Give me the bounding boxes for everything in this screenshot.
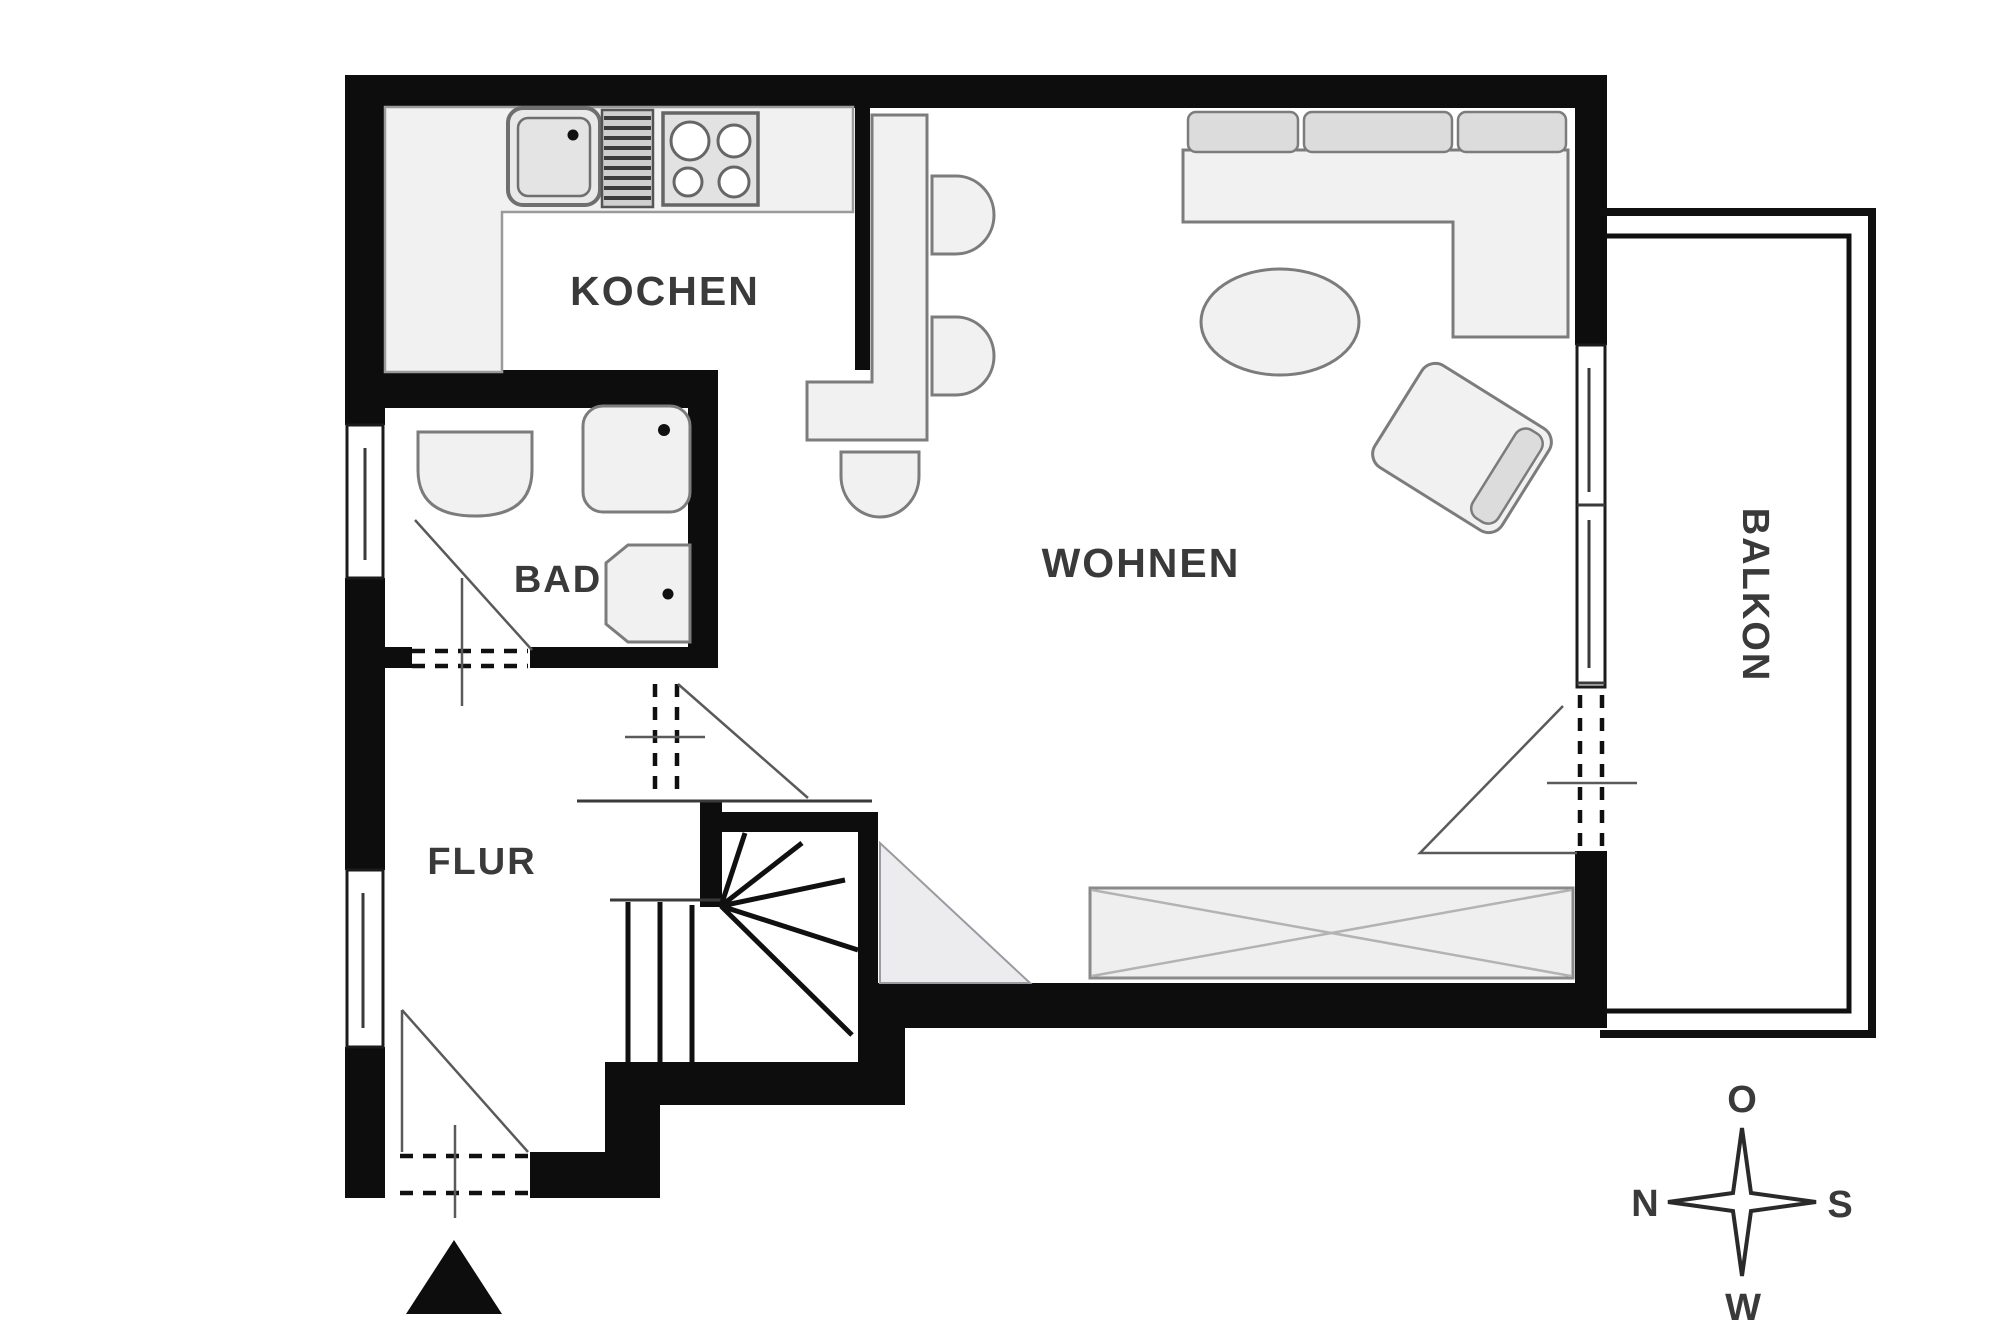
room-label-balcony: BALKON bbox=[1734, 508, 1776, 683]
floor-plan-page: O N S W KOCHEN BAD FLUR WOHNEN BALKON bbox=[0, 0, 2000, 1341]
toilet-icon bbox=[418, 432, 532, 516]
compass-north-label: N bbox=[1631, 1183, 1658, 1225]
wall-left-upper bbox=[345, 75, 385, 425]
wall-hall-right-lower bbox=[605, 1062, 660, 1198]
wall-bath-right bbox=[688, 370, 718, 668]
doors bbox=[400, 520, 1637, 1218]
coffee-table-icon bbox=[1201, 269, 1359, 375]
wall-left-lower bbox=[345, 1047, 385, 1198]
floor-plan-drawing: O N S W KOCHEN BAD FLUR WOHNEN BALKON bbox=[0, 0, 2000, 1341]
wall-bath-bottom-stub bbox=[385, 647, 412, 668]
kitchen-fixtures bbox=[385, 107, 853, 372]
wall-left-middle bbox=[345, 578, 385, 870]
wall-stair-top bbox=[703, 812, 878, 832]
drainboard-icon bbox=[602, 110, 653, 207]
hall-living-opening bbox=[625, 684, 808, 798]
room-label-hall: FLUR bbox=[427, 841, 536, 883]
room-label-bath: BAD bbox=[514, 559, 602, 601]
window-left-hall bbox=[347, 870, 383, 1047]
stairs-icon bbox=[577, 801, 872, 1062]
room-label-living: WOHNEN bbox=[1042, 540, 1241, 586]
wall-living-bottom bbox=[858, 983, 1607, 1028]
room-label-kitchen: KOCHEN bbox=[570, 268, 760, 314]
entrance-door bbox=[400, 1010, 528, 1218]
compass-west-label: W bbox=[1725, 1287, 1761, 1329]
window-right-living bbox=[1577, 345, 1605, 687]
wall-bath-top bbox=[385, 370, 718, 408]
compass-south-label: S bbox=[1827, 1184, 1852, 1226]
sideboard-icon bbox=[1090, 888, 1573, 978]
entrance-arrow-icon bbox=[406, 1240, 502, 1314]
wall-top bbox=[345, 75, 1607, 108]
armchair-icon bbox=[1367, 357, 1558, 538]
stair-door-swing bbox=[880, 843, 1030, 983]
window-left-bath bbox=[347, 425, 383, 578]
washbasin-icon bbox=[606, 545, 690, 642]
chair-icon bbox=[932, 176, 994, 254]
bath-door bbox=[412, 520, 532, 706]
stove-icon bbox=[663, 113, 758, 205]
kitchen-sink-icon bbox=[508, 108, 600, 205]
wall-bath-bottom bbox=[530, 647, 688, 668]
compass-east-label: O bbox=[1727, 1079, 1757, 1121]
chair-icon bbox=[932, 317, 994, 395]
bath-fixtures bbox=[418, 406, 690, 642]
door-swing-icon bbox=[1420, 706, 1577, 853]
wall-kitchen-partition bbox=[855, 105, 870, 370]
compass-rose-icon: O N S W bbox=[1631, 1079, 1852, 1329]
chair-icon bbox=[841, 452, 919, 517]
wall-entrance-stub bbox=[530, 1152, 605, 1198]
balcony-door bbox=[1420, 695, 1637, 853]
shower-icon bbox=[583, 406, 690, 512]
